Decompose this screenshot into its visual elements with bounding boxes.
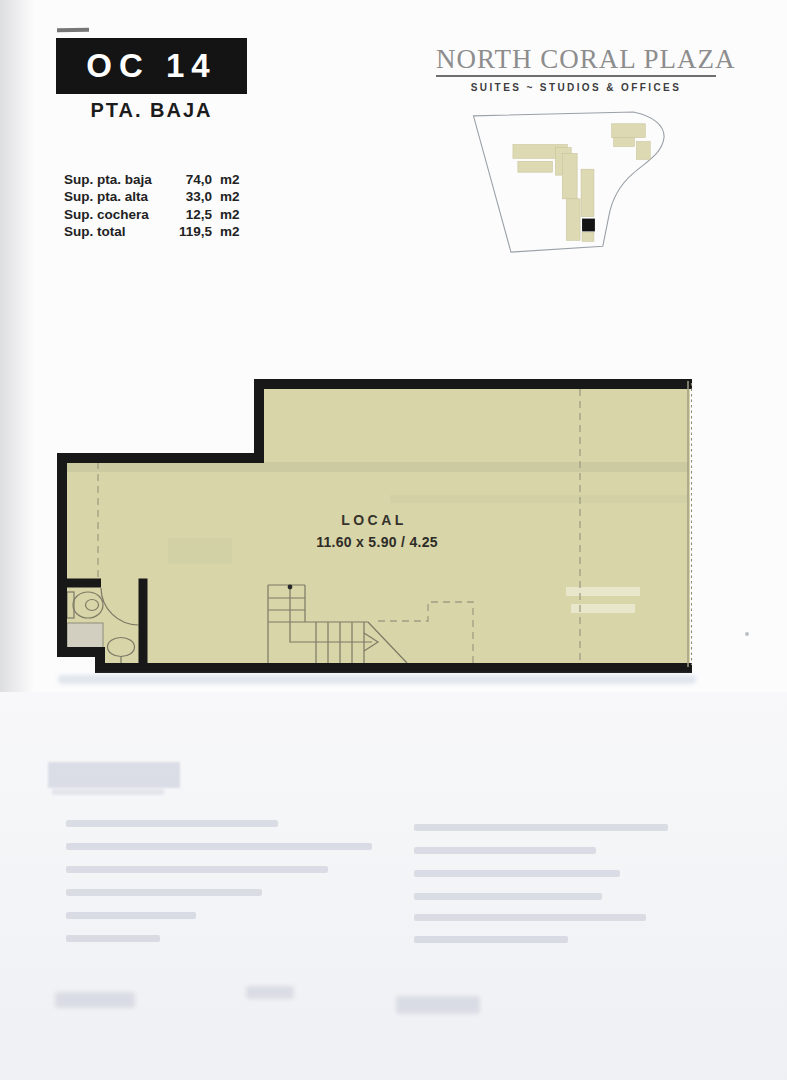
unit-code-plate: OC 14	[56, 38, 247, 94]
scan-shadow-under-plan	[58, 675, 696, 684]
ghost-heading-block	[48, 762, 180, 788]
building-block	[518, 161, 553, 172]
ghost-text-line	[414, 824, 668, 831]
scan-edge-shadow	[0, 0, 34, 700]
scan-ghost-band	[390, 495, 688, 503]
brand-logo: NORTH CORAL PLAZA SUITES ~ STUDIOS & OFF…	[436, 44, 716, 93]
building-block	[562, 153, 577, 198]
surface-row: Sup. pta. alta 33,0 m2	[64, 188, 246, 205]
surface-unit: m2	[220, 207, 246, 222]
unit-code-text: OC 14	[86, 47, 216, 85]
room-dimensions: 11.60 x 5.90 / 4.25	[316, 534, 438, 550]
brand-name: NORTH CORAL PLAZA	[436, 44, 716, 74]
floor-plan: LOCAL 11.60 x 5.90 / 4.25	[52, 368, 702, 680]
ghost-mark	[246, 986, 294, 999]
surface-value: 119,5	[168, 224, 212, 239]
scan-ghost-band	[60, 462, 688, 472]
ghost-text-line	[414, 893, 602, 900]
surface-label: Sup. cochera	[64, 207, 168, 222]
building-block	[582, 232, 594, 241]
ghost-mark	[55, 992, 135, 1008]
floor-label: PTA. BAJA	[56, 99, 247, 122]
surface-row: Sup. pta. baja 74,0 m2	[64, 171, 246, 188]
surface-table: Sup. pta. baja 74,0 m2 Sup. pta. alta 33…	[64, 171, 246, 240]
surface-label: Sup. total	[64, 224, 168, 239]
surface-unit: m2	[220, 189, 246, 204]
ghost-text-line	[66, 866, 328, 873]
scan-speck	[745, 632, 749, 636]
scan-ghost-patch	[168, 538, 232, 564]
ghost-heading-underline	[52, 789, 164, 795]
ghost-text-line	[66, 889, 262, 896]
scan-artifact-mark	[57, 28, 89, 33]
surface-value: 12,5	[168, 207, 212, 222]
ghost-text-line	[66, 843, 372, 850]
ghost-text-line	[66, 935, 160, 942]
building-block	[581, 169, 594, 216]
building-blocks	[513, 124, 650, 242]
site-plan-map	[462, 106, 712, 264]
building-block	[614, 138, 635, 147]
ghost-mark	[396, 996, 480, 1014]
brand-tagline: SUITES ~ STUDIOS & OFFICES	[436, 82, 716, 93]
ghost-text-line	[414, 847, 596, 854]
ghost-text-line	[414, 870, 620, 877]
surface-unit: m2	[220, 172, 246, 187]
surface-unit: m2	[220, 224, 246, 239]
brand-underline	[436, 75, 716, 77]
ghost-text-line	[414, 936, 568, 943]
unit-location-marker	[582, 219, 595, 232]
direction-arrow-origin	[288, 585, 293, 590]
room-label: LOCAL	[341, 512, 407, 528]
surface-label: Sup. pta. alta	[64, 189, 168, 204]
surface-row: Sup. cochera 12,5 m2	[64, 206, 246, 223]
ghost-text-line	[66, 820, 278, 827]
surface-label: Sup. pta. baja	[64, 172, 168, 187]
scan-ghost-text	[566, 587, 640, 596]
surface-value: 33,0	[168, 189, 212, 204]
surface-row: Sup. total 119,5 m2	[64, 223, 246, 240]
surface-value: 74,0	[168, 172, 212, 187]
ghost-text-line	[414, 914, 646, 921]
building-block	[636, 142, 650, 160]
building-block	[566, 199, 580, 240]
ghost-text-line	[66, 912, 196, 919]
scan-paper-tint	[0, 692, 787, 1080]
scanned-brochure-page: OC 14 PTA. BAJA Sup. pta. baja 74,0 m2 S…	[0, 0, 787, 1080]
building-block	[612, 124, 646, 138]
